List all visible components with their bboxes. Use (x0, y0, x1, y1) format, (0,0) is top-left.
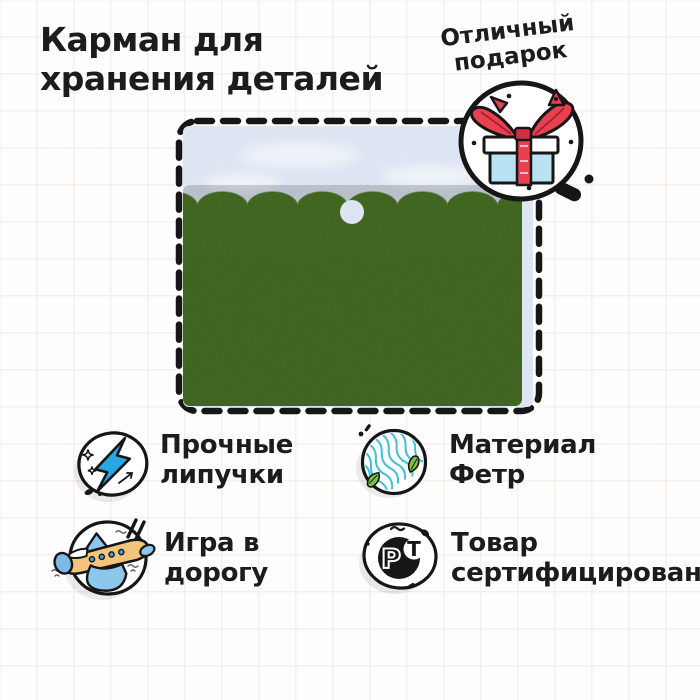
rst-letter-p: Р (381, 544, 401, 575)
title-line-2: хранения деталей (40, 59, 383, 98)
feature-label-velcro: Прочные липучки (160, 430, 293, 490)
hanging-hole (340, 200, 364, 224)
rst-letter-t: Т (407, 537, 421, 561)
feature-certified-line-1: Товар (451, 528, 700, 558)
lightning-icon (74, 429, 151, 502)
airplane-icon (49, 519, 160, 600)
feature-velcro-line-2: липучки (160, 460, 293, 490)
rst-certification-icon: Р Т (359, 520, 439, 594)
product-card: Р Т Карман для хранения деталей Отличный… (0, 0, 700, 700)
felt-fabric-icon (352, 421, 430, 499)
feature-certified-line-2: сертифицирован (451, 558, 700, 588)
feature-label-material: Материал Фетр (449, 430, 596, 490)
product-illustration: Р Т (0, 0, 700, 700)
title-line-1: Карман для (40, 20, 383, 59)
feature-travel-line-2: дорогу (164, 558, 268, 588)
feature-label-travel: Игра в дорогу (164, 528, 268, 588)
page-title: Карман для хранения деталей (40, 20, 383, 98)
speech-dash-small (585, 175, 594, 184)
feature-label-certified: Товар сертифицирован (451, 528, 700, 588)
feature-velcro-line-1: Прочные (160, 430, 293, 460)
feature-travel-line-1: Игра в (164, 528, 268, 558)
feature-material-line-2: Фетр (449, 460, 596, 490)
feature-material-line-1: Материал (449, 430, 596, 460)
